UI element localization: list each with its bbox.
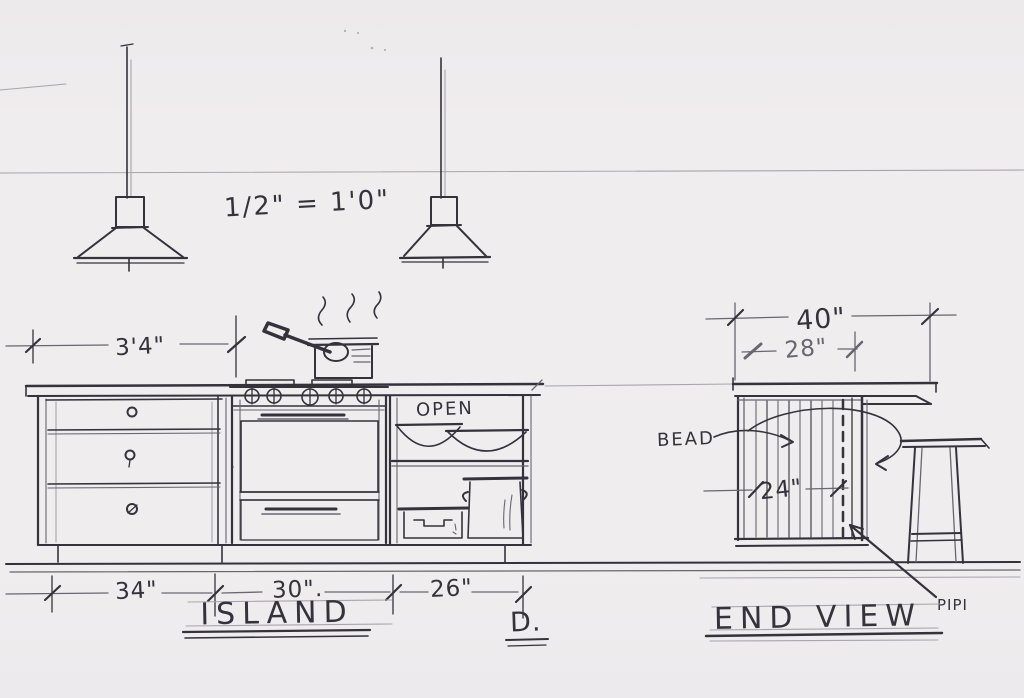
stool-icon (901, 439, 989, 563)
end-view: 40" 28" 24" BEAD (657, 302, 989, 641)
scale-note: 1/2" = 1'0" (223, 185, 391, 224)
dim-counter: 28" (784, 334, 829, 364)
blueprint-scan: 1/2" = 1'0" (0, 0, 1024, 698)
dimension-3ft4: 3'4" (6, 316, 245, 377)
drawer-knob-icon (126, 451, 135, 468)
pendant-lamp-left-icon (74, 44, 187, 271)
baking-pan-icon (399, 508, 468, 538)
sketch-canvas: 1/2" = 1'0" (0, 0, 1024, 698)
bead-arrow-icon (714, 430, 791, 441)
range (230, 380, 388, 543)
bead-arrow-icon (748, 408, 901, 463)
open-label: OPEN (416, 398, 475, 421)
pendant-lamp-right-icon (400, 58, 490, 268)
bowls-icon (396, 424, 528, 451)
bead-callout: BEAD (657, 408, 901, 470)
end-view-title: END VIEW (714, 598, 923, 637)
pipe-label: PIPI (937, 596, 968, 614)
steam-icon (319, 297, 326, 325)
dimension-24: 24" (704, 475, 848, 505)
oven-door (241, 421, 378, 492)
island-title-block: ISLAND (183, 595, 392, 638)
dim-panel: 24" (758, 475, 803, 505)
detail-ref: D. (509, 606, 541, 638)
drawer-knob-icon (127, 504, 137, 514)
drawer-knob-icon (128, 408, 137, 417)
end-view-title-block: END VIEW (706, 598, 942, 641)
pot-on-stove-icon (264, 292, 381, 378)
drawer-stack (38, 396, 226, 545)
dimension-28: 28" (742, 332, 862, 371)
paper-artifacts (0, 30, 1024, 468)
dimension-40: 40" (706, 302, 956, 381)
stock-pot-icon (463, 478, 527, 538)
steam-icon (347, 294, 354, 322)
dim-shelves: 26" (429, 575, 473, 603)
island-title: ISLAND (200, 595, 354, 633)
detail-ref-block: D. (506, 606, 548, 646)
toe-kick-and-floor (6, 545, 1020, 578)
dim-counter-left: 3'4" (114, 333, 165, 362)
dim-overall: 40" (795, 302, 847, 336)
warming-drawer (241, 500, 378, 540)
bead-label: BEAD (657, 428, 716, 451)
steam-icon (374, 292, 381, 318)
dim-drawers: 34" (114, 577, 158, 605)
open-shelves: OPEN (390, 396, 531, 545)
beadboard-panel (735, 397, 868, 546)
